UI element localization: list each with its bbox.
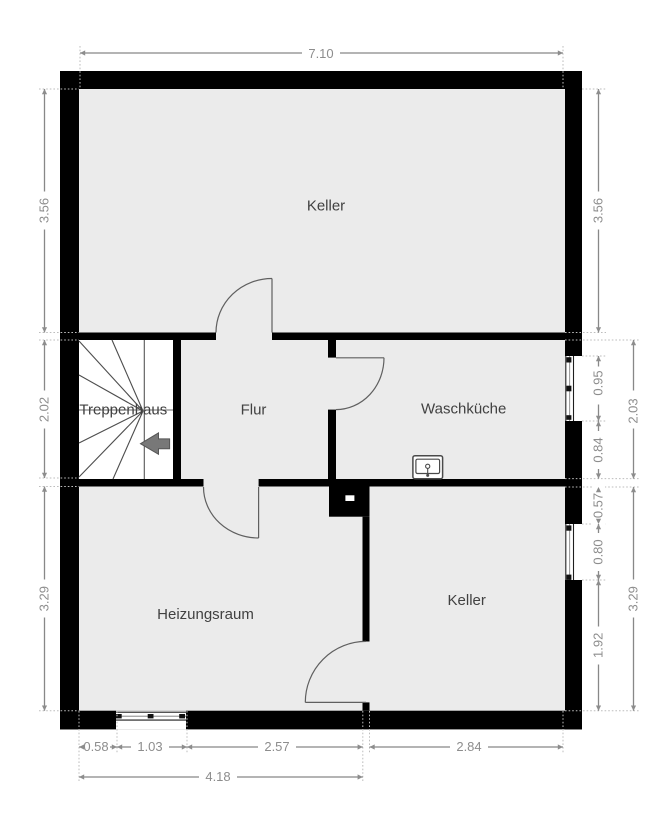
svg-text:Flur: Flur xyxy=(241,402,267,419)
svg-text:3.29: 3.29 xyxy=(37,586,52,611)
svg-text:1.92: 1.92 xyxy=(591,633,606,658)
svg-text:Keller: Keller xyxy=(448,592,486,609)
svg-text:2.84: 2.84 xyxy=(456,739,481,754)
svg-text:2.02: 2.02 xyxy=(37,397,52,422)
svg-text:3.56: 3.56 xyxy=(37,198,52,223)
svg-text:Waschküche: Waschküche xyxy=(421,401,506,418)
svg-text:Heizungsraum: Heizungsraum xyxy=(157,606,254,623)
svg-text:Treppenhaus: Treppenhaus xyxy=(79,402,167,419)
svg-text:0.57: 0.57 xyxy=(591,493,606,518)
svg-text:4.18: 4.18 xyxy=(205,769,230,784)
svg-text:7.10: 7.10 xyxy=(308,46,333,61)
svg-text:0.95: 0.95 xyxy=(591,370,606,395)
svg-text:0.58: 0.58 xyxy=(83,739,108,754)
svg-text:1.03: 1.03 xyxy=(137,739,162,754)
svg-text:2.57: 2.57 xyxy=(264,739,289,754)
svg-text:0.80: 0.80 xyxy=(591,539,606,564)
svg-text:Keller: Keller xyxy=(307,197,345,214)
svg-text:2.03: 2.03 xyxy=(626,398,641,423)
svg-text:0.84: 0.84 xyxy=(591,437,606,462)
svg-text:3.29: 3.29 xyxy=(626,586,641,611)
svg-text:3.56: 3.56 xyxy=(591,198,606,223)
